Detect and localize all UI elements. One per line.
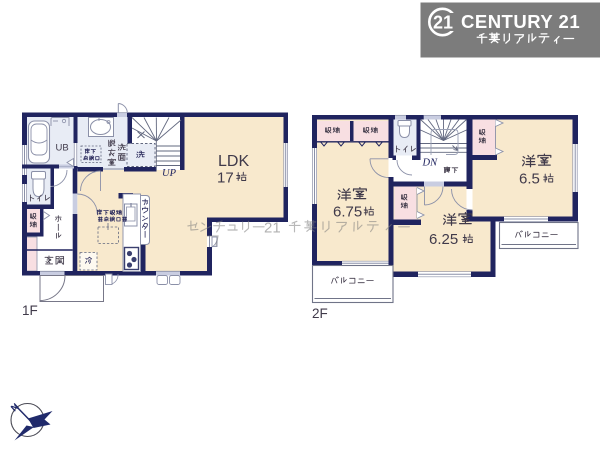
svg-text:21: 21 [433, 13, 453, 33]
svg-text:UB: UB [56, 143, 69, 154]
svg-text:2F: 2F [312, 306, 328, 321]
svg-text:LDK: LDK [218, 153, 249, 170]
svg-text:6.5: 6.5 [519, 171, 540, 188]
svg-text:CENTURY 21: CENTURY 21 [461, 11, 580, 32]
svg-text:1F: 1F [22, 303, 38, 318]
svg-text:21: 21 [264, 220, 281, 237]
svg-text:6.75: 6.75 [333, 204, 362, 221]
svg-text:17: 17 [217, 170, 234, 187]
svg-text:6.25: 6.25 [429, 231, 458, 248]
svg-text:UP: UP [162, 168, 177, 179]
svg-text:DN: DN [422, 158, 439, 169]
